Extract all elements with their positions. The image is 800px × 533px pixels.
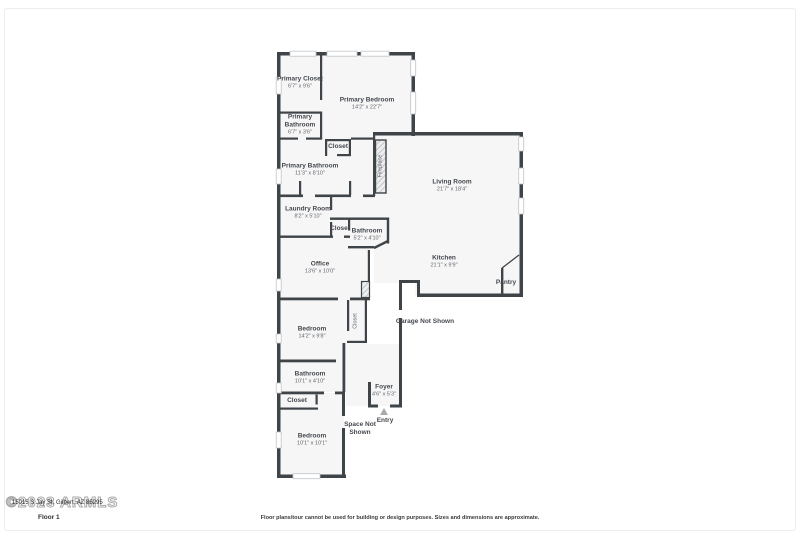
room-label-bathroom-low: Bathroom 10'1" x 4'10" [295,371,326,386]
room-label-closet-top: Closet [328,143,348,151]
room-name: Bedroom [298,326,327,334]
room-label-closet-mid: Closet [330,225,350,233]
room-label-closet-low: Closet [287,397,307,405]
room-name: Living Room [432,179,471,187]
room-name: Closet [353,313,360,329]
room-dims: 10'1" x 4'10" [295,379,326,386]
room-label-closet-vertical: Closet [353,313,360,329]
room-name: Entry [377,417,394,425]
room-label-bedroom-bottom: Bedroom 10'1" x 10'1" [297,433,327,448]
room-name: Fireplace [378,155,385,178]
room-name: Closet [287,397,307,405]
disclaimer-text: Floor plans/tour cannot be used for buil… [0,515,800,521]
label-space-not-shown: Space Not Shown [344,421,376,437]
room-label-pantry: Pantry [496,279,516,287]
room-name: Closet [328,143,348,151]
room-name: Primary Closet [277,76,323,84]
room-label-bathroom-mid: Bathroom 5'2" x 4'10" [352,228,383,243]
room-dims: 11'3" x 8'10" [282,171,339,178]
room-label-fireplace: Fireplace [378,155,385,178]
room-name: Garage Not Shown [396,318,454,326]
room-name: Kitchen [430,255,457,263]
room-dims: 5'2" x 4'10" [352,236,383,243]
room-name: Bathroom [352,228,383,236]
water-heater-icon [362,282,370,298]
room-name: Laundry Room [285,206,331,214]
room-name: Primary Bathroom [282,163,339,171]
room-label-primary-bathroom: Primary Bathroom 11'3" x 8'10" [282,163,339,178]
room-name: Office [305,261,335,269]
room-dims: 4'6" x 5'3" [372,392,396,399]
room-label-primary-bedroom: Primary Bedroom 14'2" x 22'7" [340,97,395,112]
listing-address: 15015 S Jay St, Gilbert, AZ 85295 [12,500,103,506]
room-name: Space Not Shown [344,421,376,437]
room-dims: 13'6" x 10'0" [305,269,335,276]
room-label-bedroom-mid: Bedroom 14'2" x 9'8" [298,326,327,341]
room-label-primary-closet: Primary Closet 6'7" x 9'6" [277,76,323,91]
room-label-laundry-room: Laundry Room 8'2" x 5'10" [285,206,331,221]
room-name: Closet [330,225,350,233]
room-label-foyer: Foyer 4'6" x 5'3" [372,384,396,399]
room-dims: 8'2" x 5'10" [285,214,331,221]
room-dims: 10'1" x 10'1" [297,441,327,448]
room-name: Foyer [372,384,396,392]
room-label-office: Office 13'6" x 10'0" [305,261,335,276]
room-label-primary-bathroom-small: Primary Bathroom 6'7" x 3'6" [282,113,318,136]
room-label-kitchen: Kitchen 21'1" x 9'9" [430,255,457,270]
room-label-living-room: Living Room 21'7" x 18'4" [432,179,471,194]
room-name: Bedroom [297,433,327,441]
label-entry: Entry [377,417,394,425]
label-garage-not-shown: Garage Not Shown [396,318,454,326]
room-dims: 6'7" x 3'6" [282,130,318,137]
room-name: Pantry [496,279,516,287]
room-name: Primary Bathroom [282,113,318,129]
entry-arrow-icon [380,408,388,415]
floor-plan-drawing [0,0,800,533]
room-dims: 14'2" x 9'8" [298,334,327,341]
room-dims: 21'7" x 18'4" [432,187,471,194]
room-dims: 14'2" x 22'7" [340,105,395,112]
room-dims: 6'7" x 9'6" [277,84,323,91]
room-dims: 21'1" x 9'9" [430,263,457,270]
room-name: Bathroom [295,371,326,379]
room-name: Primary Bedroom [340,97,395,105]
